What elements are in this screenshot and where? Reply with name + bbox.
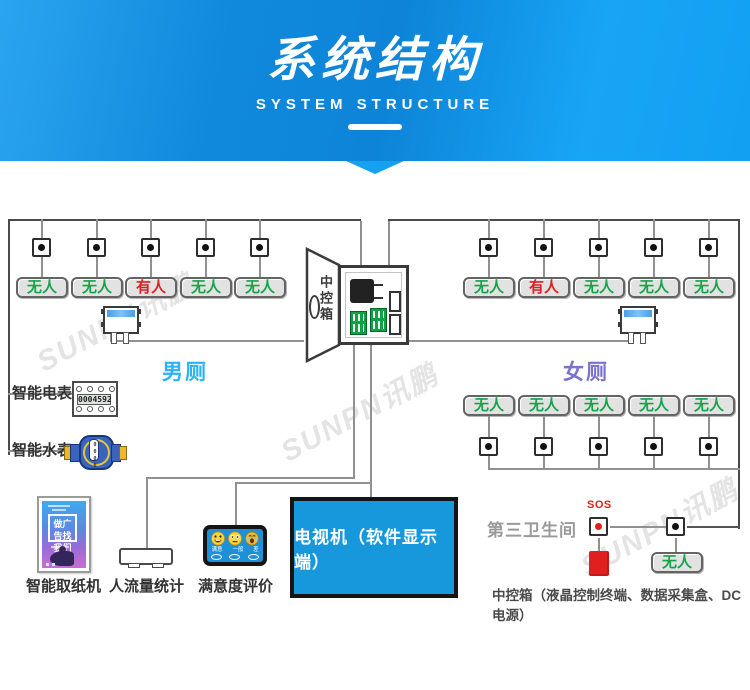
wire (353, 344, 355, 479)
stall-status-display: 无人 (628, 277, 680, 298)
wire (488, 416, 490, 437)
rating-button[interactable] (211, 554, 222, 560)
paper-dispenser-device: 做广告找我们 (37, 496, 91, 573)
wire (598, 456, 600, 469)
wire (598, 257, 600, 277)
stall-status-display: 无人 (180, 277, 232, 298)
wire (488, 257, 490, 277)
wire (610, 526, 667, 528)
collector-screen (624, 310, 652, 317)
mount-tab-icon (101, 322, 105, 327)
women-stall-4: 无人 (628, 219, 680, 298)
men-stall-2: 无人 (71, 219, 123, 298)
control-box-caption: 中控箱（液晶控制终端、数据采集盒、DC电源） (492, 584, 750, 624)
wire (370, 344, 372, 498)
control-box-label: 中控箱 (316, 275, 335, 323)
system-structure-diagram: 系统结构 SYSTEM STRUCTURE SUNPN讯鹏 SUNPN讯鹏 SU… (0, 0, 750, 690)
device-leg (123, 332, 129, 344)
wire (653, 456, 655, 469)
wire (146, 477, 355, 479)
header-notch-icon (346, 161, 404, 174)
sos-label: SOS (587, 499, 612, 511)
women-stall-5: 无人 (683, 219, 735, 298)
wire (598, 416, 600, 437)
stall-status-display: 无人 (683, 277, 735, 298)
stall-status-display: 有人 (518, 277, 570, 298)
meter-screws (74, 386, 116, 392)
women-stall-8: 无人 (573, 395, 625, 474)
women-stall-9: 无人 (628, 395, 680, 474)
pipe-fitting-icon (119, 446, 127, 460)
sos-sensor-icon (589, 517, 608, 536)
tv-label: 电视机（软件显示端） (294, 523, 454, 573)
poster-text-line (48, 505, 70, 507)
wire (708, 456, 710, 469)
women-stall-2: 有人 (518, 219, 570, 298)
men-stall-5: 无人 (234, 219, 286, 298)
mount-tab-icon (101, 309, 105, 314)
option-label[interactable]: 满意 (212, 547, 223, 552)
occupancy-sensor-icon (87, 238, 106, 257)
people-counter-label: 人流量统计 (109, 575, 184, 596)
module-slot (389, 314, 401, 335)
wire (408, 340, 630, 342)
page-title: 系统结构 (0, 20, 750, 90)
rating-button[interactable] (229, 554, 240, 560)
third-restroom-title: 第三卫生间 (487, 516, 577, 541)
satisfaction-buttons (207, 553, 263, 560)
stall-status-display: 无人 (651, 552, 703, 573)
neutral-face-icon (229, 532, 242, 545)
water-meter-label: 智能水表 (12, 439, 72, 460)
occupancy-sensor-icon (479, 238, 498, 257)
module-slot (389, 291, 401, 312)
men-room-left-wall (8, 219, 10, 455)
wire (235, 482, 372, 484)
happy-face-icon (212, 532, 225, 545)
people-counter-device (119, 548, 173, 565)
poster-text-line (52, 509, 66, 511)
women-room-right-wall (738, 219, 740, 529)
wire (687, 526, 740, 528)
mount-tab-icon (137, 309, 141, 314)
occupancy-sensor-icon (699, 437, 718, 456)
wire (708, 416, 710, 437)
poster-slogan: 做广告找我们 (48, 514, 77, 542)
device-leg (111, 332, 117, 344)
stall-status-display: 有人 (125, 277, 177, 298)
collector-screen (107, 310, 135, 317)
smart-water-meter: 0000 (64, 434, 127, 470)
women-stall-3: 无人 (573, 219, 625, 298)
mount-tab-icon (654, 322, 658, 327)
wire (653, 416, 655, 437)
men-stall-1: 无人 (16, 219, 68, 298)
wire (96, 257, 98, 277)
stall-status-display: 无人 (573, 277, 625, 298)
wire (543, 456, 545, 469)
power-adapter-icon (350, 279, 374, 303)
mount-tab-icon (618, 322, 622, 327)
data-collector-device (620, 306, 656, 334)
watermark: SUNPN讯鹏 (272, 352, 445, 471)
men-stall-4: 无人 (180, 219, 232, 298)
electric-meter-reading: 0004592 (77, 394, 111, 405)
occupancy-sensor-icon (141, 238, 160, 257)
water-meter-reading: 0000 (89, 439, 99, 461)
device-leg (640, 332, 646, 344)
wire (41, 257, 43, 277)
occupancy-sensor-icon (250, 238, 269, 257)
occupancy-sensor-icon (534, 437, 553, 456)
rating-button[interactable] (248, 554, 259, 560)
occupancy-sensor-icon (589, 238, 608, 257)
men-room-label: 男厕 (162, 356, 208, 386)
stall-status-display: 无人 (683, 395, 735, 416)
wire (205, 219, 207, 238)
tv-display: 电视机（软件显示端） (290, 497, 458, 598)
wire (235, 482, 237, 526)
wire (96, 219, 98, 238)
stall-status-display: 无人 (573, 395, 625, 416)
wire (259, 257, 261, 277)
ad-poster: 做广告找我们 (42, 501, 86, 568)
adapter-prong (374, 284, 383, 286)
wire (360, 221, 362, 266)
occupancy-sensor-icon (644, 238, 663, 257)
sos-call-button[interactable] (589, 551, 609, 576)
occupancy-sensor-icon (196, 238, 215, 257)
wire (708, 219, 710, 238)
stall-status-display: 无人 (463, 277, 515, 298)
meter-screws (74, 406, 116, 412)
wire (488, 219, 490, 238)
occupancy-sensor-icon (479, 437, 498, 456)
wire (146, 477, 148, 549)
stall-status-display: 无人 (463, 395, 515, 416)
women-stall-10: 无人 (683, 395, 735, 474)
stall-status-display: 无人 (628, 395, 680, 416)
wire (543, 219, 545, 238)
satisfaction-screen: 满意 一般 差 (207, 529, 263, 562)
women-stall-7: 无人 (518, 395, 570, 474)
central-control-box (338, 265, 409, 345)
wire (708, 257, 710, 277)
wire (543, 257, 545, 277)
wire (488, 456, 490, 469)
mount-tab-icon (137, 322, 141, 327)
wire (598, 538, 600, 552)
wire (653, 257, 655, 277)
satisfaction-options: 满意 一般 差 (207, 547, 263, 553)
emoji-faces-icon (207, 530, 263, 547)
wire (150, 257, 152, 277)
wire (150, 219, 152, 238)
wire (110, 340, 304, 342)
occupancy-sensor-icon (32, 238, 51, 257)
stall-status-display: 无人 (16, 277, 68, 298)
occupancy-sensor-icon (644, 437, 663, 456)
satisfaction-terminal: 满意 一般 差 (203, 525, 267, 566)
adapter-prong (374, 297, 383, 299)
wire (653, 219, 655, 238)
stall-status-display: 无人 (71, 277, 123, 298)
mount-tab-icon (618, 309, 622, 314)
header-banner: 系统结构 SYSTEM STRUCTURE (0, 0, 750, 161)
crying-face-icon (246, 532, 259, 545)
wire (543, 416, 545, 437)
wire (598, 219, 600, 238)
mount-tab-icon (654, 309, 658, 314)
occupancy-sensor-icon (534, 238, 553, 257)
terminal-block-icon (370, 308, 387, 332)
option-label[interactable]: 一般 (233, 547, 244, 552)
wire (205, 257, 207, 277)
poster-dot (46, 563, 49, 566)
data-collector-device (103, 306, 139, 334)
poster-dot (52, 563, 55, 566)
title-underline (348, 124, 402, 130)
satisfaction-label: 满意度评价 (198, 575, 273, 596)
terminal-block-icon (350, 311, 367, 335)
stall-status-display: 无人 (518, 395, 570, 416)
paper-dispenser-label: 智能取纸机 (26, 575, 101, 596)
stall-status-display: 无人 (234, 277, 286, 298)
men-stall-3: 有人 (125, 219, 177, 298)
wire (675, 538, 677, 553)
wire (259, 219, 261, 238)
women-stall-6: 无人 (463, 395, 515, 474)
smart-electric-meter: 0004592 (72, 381, 118, 417)
occupancy-sensor-icon (589, 437, 608, 456)
wire (388, 221, 390, 266)
page-subtitle: SYSTEM STRUCTURE (0, 96, 750, 113)
women-stall-1: 无人 (463, 219, 515, 298)
electric-meter-label: 智能电表 (12, 382, 72, 403)
women-room-label: 女厕 (563, 356, 609, 386)
wire (41, 219, 43, 238)
occupancy-sensor-icon (666, 517, 685, 536)
device-leg (628, 332, 634, 344)
option-label[interactable]: 差 (253, 547, 258, 552)
occupancy-sensor-icon (699, 238, 718, 257)
